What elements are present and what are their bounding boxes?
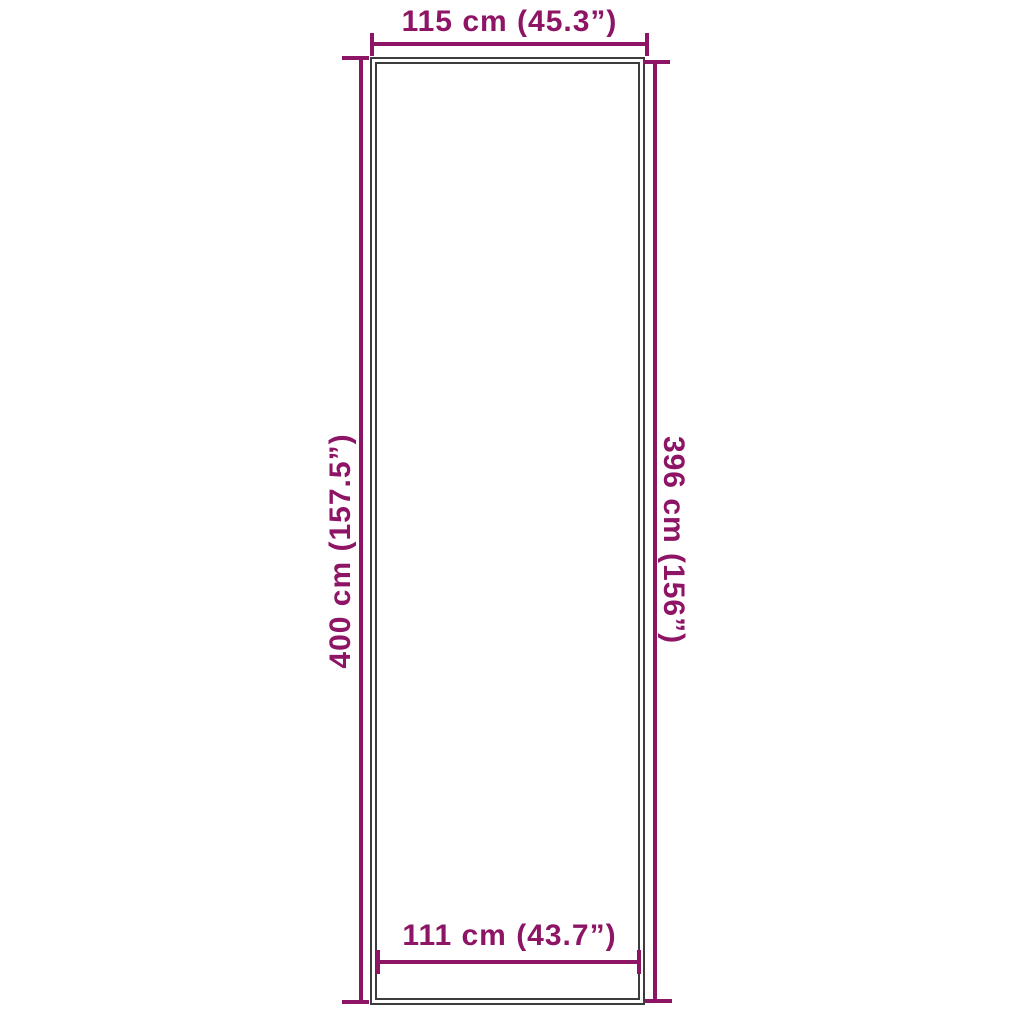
product-outline-inner-border <box>375 62 640 1000</box>
right-dimension-label: 396 cm (156”) <box>653 340 693 740</box>
top-dimension-label: 115 cm (45.3”) <box>372 2 647 42</box>
right-dimension-tick-top <box>643 60 670 64</box>
product-outline-rectangle <box>370 57 645 1005</box>
dimension-diagram: 115 cm (45.3”) 111 cm (43.7”) 400 cm (15… <box>0 0 1024 1024</box>
bottom-dimension-line <box>378 960 641 964</box>
bottom-dimension-label: 111 cm (43.7”) <box>378 916 641 956</box>
left-dimension-tick-bottom <box>342 1000 369 1004</box>
top-dimension-line <box>372 42 647 46</box>
left-dimension-label: 400 cm (157.5”) <box>321 351 361 751</box>
left-dimension-tick-top <box>342 56 369 60</box>
right-dimension-tick-bottom <box>645 999 672 1003</box>
